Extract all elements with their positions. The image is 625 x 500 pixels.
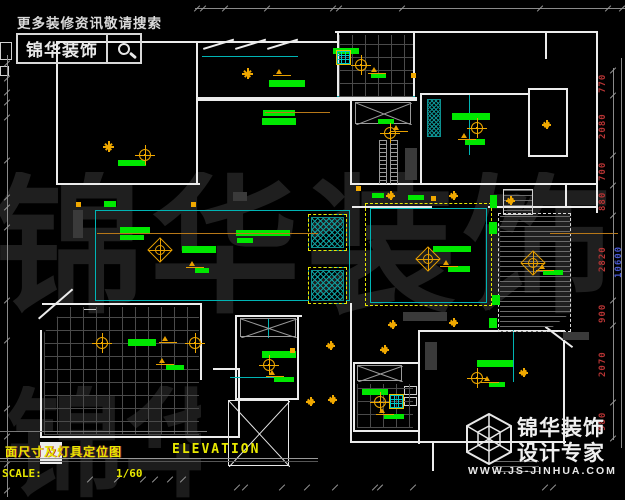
wall-lamp-icon: [440, 259, 458, 267]
search-icon: [108, 35, 140, 62]
spotlight-icon: [388, 320, 397, 329]
wall-segment: [528, 88, 530, 157]
furniture-block: [73, 210, 83, 238]
spotlight-icon: [449, 191, 458, 200]
wall-segment: [565, 183, 567, 208]
wall-segment: [196, 41, 198, 100]
annotation-label-bar: [492, 295, 500, 305]
flower-light-icon: [103, 141, 114, 152]
wall-segment: [235, 315, 237, 400]
scale-label: SCALE:: [2, 467, 42, 480]
flower-light-icon: [242, 68, 253, 79]
annotation-label-bar: [262, 118, 296, 125]
leader-line: [265, 112, 330, 113]
hatch-ladder: [390, 140, 398, 184]
footer-website[interactable]: WWW.JS-JINHUA.COM: [468, 465, 617, 477]
dimension-label: 700: [598, 155, 609, 187]
wall-segment: [352, 183, 598, 185]
drawing-title-en: ELEVATION: [172, 442, 260, 457]
furniture-block: [233, 192, 247, 201]
small-light-icon: [290, 348, 295, 353]
dimension-tick: [410, 484, 416, 490]
downlight-icon: [96, 337, 108, 349]
wall-lamp-icon: [156, 357, 174, 365]
cad-cyan-line: [202, 56, 298, 57]
annotation-label-bar: [182, 246, 216, 253]
small-light-icon: [191, 202, 196, 207]
dimension-tick: [180, 476, 186, 482]
annotation-label-bar: [104, 201, 116, 207]
cad-cyan-line: [513, 330, 514, 382]
wall-segment: [545, 31, 547, 59]
wall-lamp-icon: [390, 124, 408, 132]
downlight-icon: [189, 337, 201, 349]
annotation-label-bar: [274, 377, 294, 382]
spotlight-icon: [542, 120, 551, 129]
downlight-icon: [355, 59, 367, 71]
annotation-label-bar: [489, 222, 497, 234]
spotlight-icon: [449, 318, 458, 327]
small-light-icon: [411, 73, 416, 78]
brand-name-label: 锦华装饰: [18, 35, 106, 62]
chandelier-icon: [416, 247, 440, 271]
wall-outline: [0, 42, 12, 60]
cad-cyan-line: [349, 210, 350, 301]
dimension-label: 2820: [598, 243, 609, 275]
leader-line: [97, 233, 318, 234]
wall-segment: [40, 436, 240, 438]
dimension-tick: [304, 484, 310, 490]
hatch-door-strip: [427, 99, 441, 137]
cad-cyan-line: [95, 210, 350, 211]
footer-brand-line2: 设计专家: [517, 437, 605, 467]
spotlight-icon: [306, 397, 315, 406]
dimension-tick: [542, 484, 548, 490]
wall-lamp-icon: [266, 369, 284, 377]
annotation-label-bar: [372, 193, 384, 198]
wall-segment: [353, 430, 420, 432]
chandelier-icon: [148, 238, 172, 262]
crosshatch-square: [308, 267, 347, 304]
small-light-icon: [431, 196, 436, 201]
downlight-icon: [139, 149, 151, 161]
title-divider: [0, 458, 318, 459]
dimension-label: 880: [598, 185, 609, 217]
spotlight-icon: [326, 341, 335, 350]
annotation-label-bar: [477, 360, 513, 367]
annotation-label-bar: [166, 365, 184, 370]
spotlight-icon: [519, 368, 528, 377]
wall-segment: [528, 88, 568, 90]
wall-segment: [235, 315, 302, 317]
annotation-label-bar: [269, 80, 305, 87]
wall-lamp-icon: [368, 66, 386, 74]
furniture-block: [405, 148, 417, 180]
annotation-label-bar: [237, 238, 253, 243]
dimension-tick: [87, 476, 93, 482]
wall-segment: [353, 362, 355, 432]
wall-segment: [350, 303, 352, 443]
furniture-block: [425, 342, 437, 370]
small-light-icon: [356, 186, 361, 191]
furniture-block: [403, 312, 447, 321]
dimension-tick: [279, 484, 285, 490]
wall-segment: [350, 101, 352, 185]
promo-slogan: 更多装修资讯敬请搜索: [17, 12, 162, 32]
wall-lamp-icon: [159, 335, 177, 343]
dimension-line: [195, 8, 625, 9]
wall-segment: [42, 303, 202, 305]
x-cross-box: [357, 365, 402, 381]
annotation-label-bar: [408, 195, 424, 200]
cad-cyan-line: [95, 210, 96, 301]
annotation-label-bar: [120, 235, 144, 240]
wall-segment: [40, 330, 42, 438]
wall-segment: [432, 443, 434, 471]
small-light-icon: [76, 202, 81, 207]
brand-search-box[interactable]: 锦华装饰: [16, 33, 142, 64]
wall-segment: [196, 101, 198, 185]
leader-line: [550, 233, 618, 234]
dimension-label: 2070: [598, 348, 609, 380]
dimension-label: 770: [598, 67, 609, 99]
annotation-label-bar: [128, 339, 156, 346]
dimension-tick: [152, 476, 158, 482]
cad-ceiling-plan-screenshot: 锦华装饰 锦华装饰 770208070088028209002070980106…: [0, 0, 625, 500]
wall-lamp-icon: [481, 375, 499, 383]
wall-segment: [335, 31, 598, 33]
x-cross-box: [240, 318, 296, 337]
wall-segment: [413, 33, 415, 98]
dimension-total-label: 10600: [614, 240, 625, 284]
scale-value: 1/60: [116, 467, 143, 480]
dimension-label: 2080: [598, 110, 609, 142]
dimension-tick: [610, 435, 616, 441]
wall-lamp-icon: [458, 132, 476, 140]
annotation-label-bar: [489, 318, 497, 328]
furniture-block: [563, 332, 589, 340]
wall-segment: [297, 315, 299, 400]
exhaust-fan-icon: [389, 394, 404, 409]
wall-lamp-icon: [186, 260, 204, 268]
spotlight-icon: [506, 196, 515, 205]
dimension-tick: [332, 484, 338, 490]
cube-logo-icon: [466, 413, 512, 465]
dimension-label: 900: [598, 297, 609, 329]
ceiling-grid: [44, 307, 199, 435]
wall-segment: [418, 330, 420, 444]
spotlight-icon: [386, 191, 395, 200]
title-block-frame-line: [0, 431, 207, 432]
annotation-label-bar: [263, 110, 295, 116]
annotation-label-bar: [490, 195, 497, 208]
wall-segment: [528, 155, 568, 157]
dimension-tick: [550, 484, 556, 490]
dimension-tick: [234, 484, 240, 490]
dimension-tick: [167, 476, 173, 482]
exhaust-fan-icon: [336, 50, 351, 65]
wall-segment: [422, 93, 530, 95]
wall-segment: [565, 183, 598, 185]
wall-lamp-icon: [536, 263, 554, 271]
wall-segment: [196, 97, 417, 101]
spotlight-icon: [328, 395, 337, 404]
wall-lamp-icon: [273, 68, 291, 76]
hatch-ladder: [379, 140, 387, 184]
wall-segment: [353, 362, 420, 364]
annotation-label-bar: [195, 268, 209, 273]
title-divider: [0, 461, 318, 462]
cad-cyan-line: [230, 377, 278, 378]
wall-segment: [420, 93, 422, 185]
dimension-tick: [242, 484, 248, 490]
wall-segment: [566, 88, 568, 157]
spotlight-icon: [380, 345, 389, 354]
wall-segment: [56, 183, 200, 185]
